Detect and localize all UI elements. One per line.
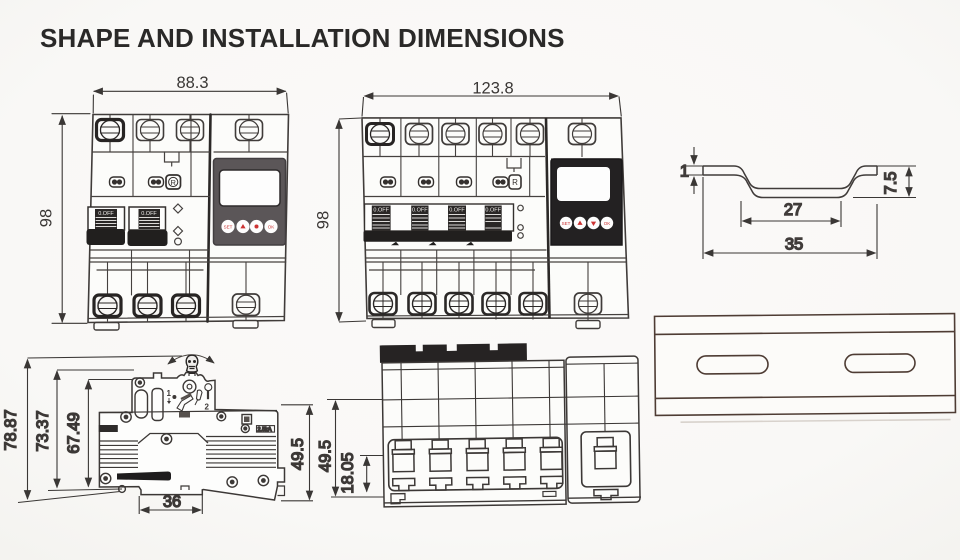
svg-text:35: 35 [785,236,803,254]
svg-text:7.5: 7.5 [882,172,900,195]
svg-text:88.3: 88.3 [176,74,208,92]
svg-text:98: 98 [315,211,333,229]
svg-text:98: 98 [38,209,56,227]
svg-text:R: R [170,178,176,187]
svg-text:0.OFF: 0.OFF [141,211,157,217]
svg-text:SET: SET [224,225,233,230]
svg-text:0.OFF: 0.OFF [98,211,114,217]
svg-text:18.05: 18.05 [339,452,357,493]
svg-text:49.5: 49.5 [289,438,307,470]
svg-text:78.87: 78.87 [2,409,20,450]
svg-text:SHAPE AND INSTALLATION DIMENSI: SHAPE AND INSTALLATION DIMENSIONS [40,23,565,53]
svg-text:0.OFF: 0.OFF [373,208,389,214]
svg-text:OK: OK [604,221,611,226]
svg-text:R: R [512,178,518,187]
svg-text:2: 2 [205,403,210,412]
svg-text:OK: OK [268,225,275,230]
svg-text:73.37: 73.37 [34,410,52,451]
svg-text:36: 36 [163,493,181,511]
svg-text:0.OFF: 0.OFF [449,208,465,214]
svg-text:27: 27 [784,201,802,219]
svg-text:1: 1 [680,163,689,181]
svg-text:123.8: 123.8 [472,80,513,98]
svg-text:0.OFF: 0.OFF [485,208,501,214]
svg-text:SET: SET [562,221,571,226]
svg-text:49.5: 49.5 [317,440,335,472]
svg-text:1: 1 [167,389,172,398]
svg-text:67.49: 67.49 [65,412,83,453]
svg-text:2.5kA: 2.5kA [258,427,272,433]
svg-text:0.OFF: 0.OFF [412,208,428,214]
